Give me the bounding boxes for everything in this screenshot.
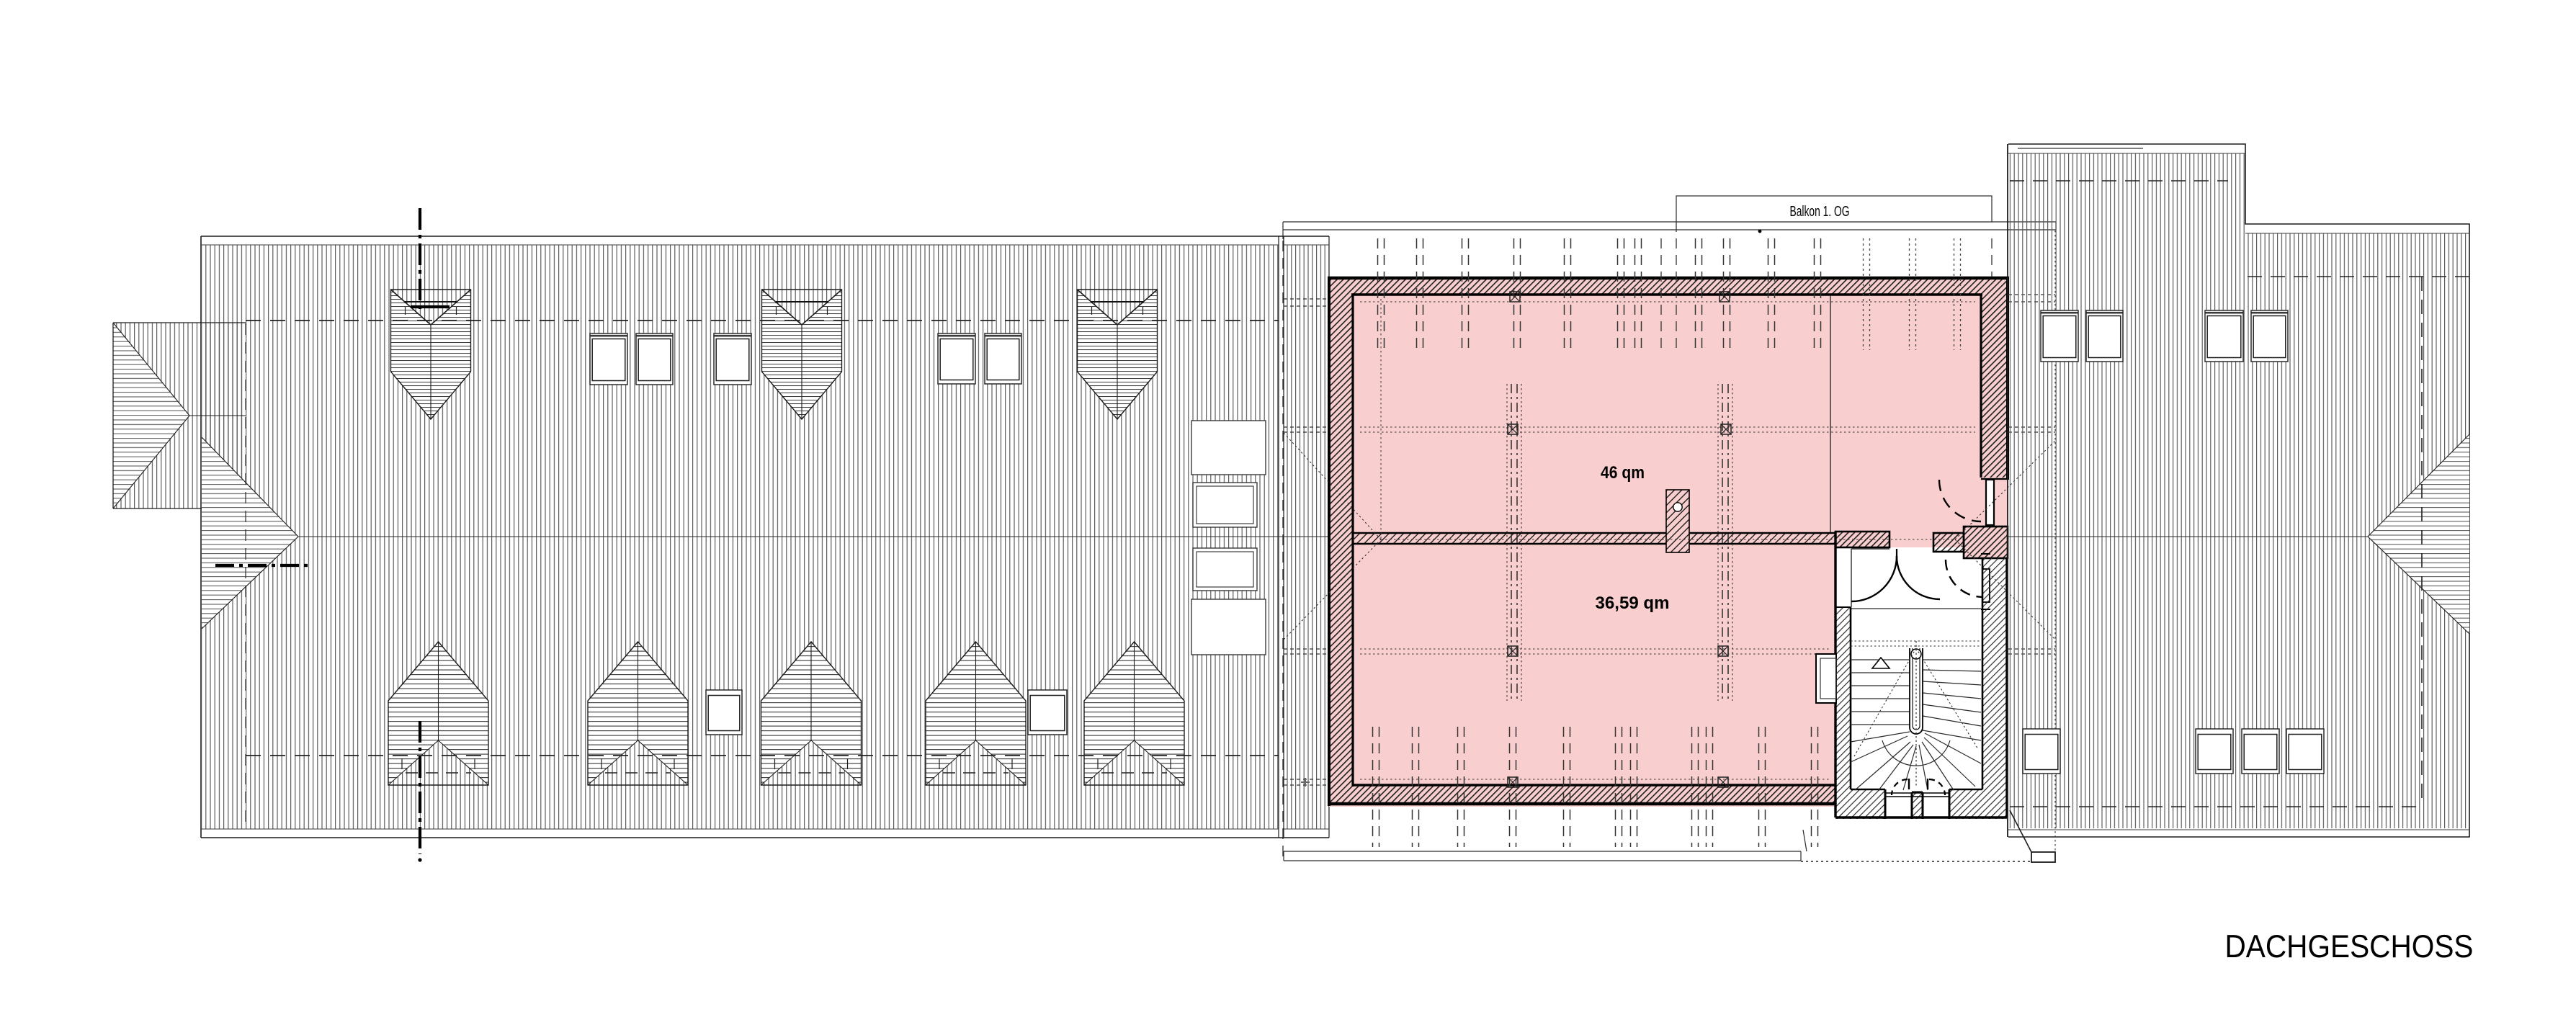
svg-text:46 qm: 46 qm: [1601, 464, 1645, 483]
svg-text:DACHGESCHOSS: DACHGESCHOSS: [2225, 929, 2474, 964]
svg-text:36,59 qm: 36,59 qm: [1596, 594, 1670, 613]
svg-text:Balkon 1. OG: Balkon 1. OG: [1790, 204, 1850, 220]
